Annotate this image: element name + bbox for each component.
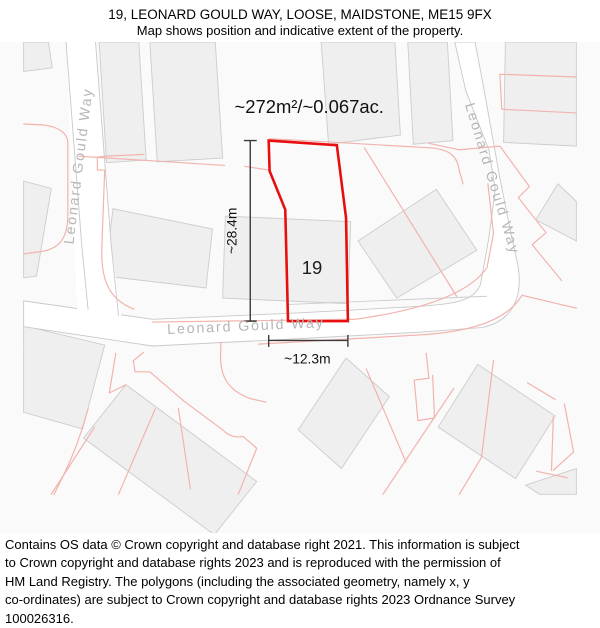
map-canvas: Leonard Gould Way Leonard Gould Way Leon… — [0, 42, 600, 533]
footer-line: Contains OS data © Crown copyright and d… — [5, 536, 596, 554]
footer-line: co-ordinates) are subject to Crown copyr… — [5, 591, 596, 609]
property-map: Leonard Gould Way Leonard Gould Way Leon… — [0, 42, 600, 533]
dimension-horizontal-label: ~12.3m — [284, 350, 330, 366]
property-address-title: 19, LEONARD GOULD WAY, LOOSE, MAIDSTONE,… — [0, 7, 600, 23]
map-header: 19, LEONARD GOULD WAY, LOOSE, MAIDSTONE,… — [0, 0, 600, 42]
plot-area-label: ~272m²/~0.067ac. — [235, 96, 384, 117]
map-description: Map shows position and indicative extent… — [0, 23, 600, 39]
footer-line: 100026316. — [5, 610, 596, 628]
plot-number-label: 19 — [302, 257, 322, 278]
footer-line: to Crown copyright and database rights 2… — [5, 554, 596, 572]
dimension-vertical-label: ~28.4m — [223, 208, 239, 254]
footer-line: HM Land Registry. The polygons (includin… — [5, 573, 596, 591]
copyright-footer: Contains OS data © Crown copyright and d… — [0, 533, 600, 625]
